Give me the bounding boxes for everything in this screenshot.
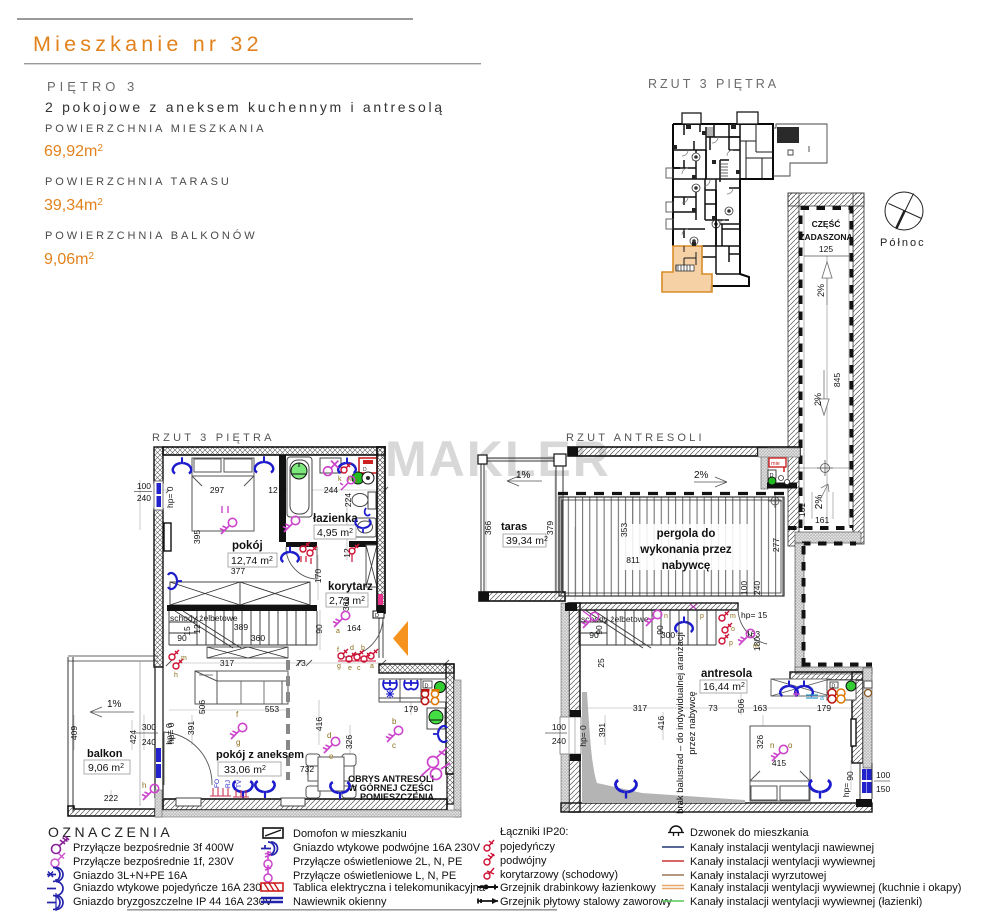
svg-text:schody żelbetowe: schody żelbetowe: [170, 613, 238, 623]
svg-text:h: h: [174, 672, 178, 679]
svg-text:1%: 1%: [516, 470, 531, 481]
svg-text:732: 732: [300, 764, 314, 774]
svg-text:409: 409: [69, 726, 79, 740]
svg-text:100: 100: [876, 770, 890, 780]
svg-text:326: 326: [755, 735, 765, 749]
svg-text:pokój: pokój: [232, 540, 263, 552]
svg-text:69,92m2: 69,92m2: [44, 143, 103, 160]
svg-text:Przyłącze bezpośrednie 3f 400W: Przyłącze bezpośrednie 3f 400W: [73, 842, 234, 854]
svg-text:o: o: [788, 741, 793, 750]
svg-text:240: 240: [137, 493, 151, 503]
svg-text:hp= 0: hp= 0: [164, 723, 174, 745]
svg-text:Nawiewnik okienny: Nawiewnik okienny: [293, 896, 387, 908]
svg-text:101: 101: [797, 503, 807, 517]
svg-text:163: 163: [753, 703, 767, 713]
svg-text:RZUT 3 PIĘTRA: RZUT 3 PIĘTRA: [152, 432, 275, 444]
svg-text:POWIERZCHNIA TARASU: POWIERZCHNIA TARASU: [45, 176, 232, 188]
svg-text:240: 240: [752, 581, 762, 595]
svg-text:553: 553: [265, 704, 279, 714]
svg-text:16,44 m2: 16,44 m2: [703, 681, 745, 693]
svg-text:353: 353: [619, 523, 629, 537]
svg-text:e: e: [329, 752, 334, 761]
svg-text:RZUT 3 PIĘTRA: RZUT 3 PIĘTRA: [648, 77, 779, 91]
svg-text:d: d: [327, 731, 331, 740]
svg-text:wykonania przez: wykonania przez: [639, 544, 732, 556]
svg-text:korytarz: korytarz: [328, 581, 373, 593]
svg-text:g: g: [337, 663, 341, 670]
svg-text:224: 224: [343, 493, 353, 507]
svg-text:Dzwonek do mieszkania: Dzwonek do mieszkania: [690, 827, 809, 839]
svg-text:taras: taras: [501, 521, 527, 533]
svg-text:100: 100: [137, 481, 151, 491]
svg-text:179: 179: [817, 703, 831, 713]
svg-text:pergola do: pergola do: [657, 528, 716, 540]
svg-text:m: m: [181, 655, 187, 662]
svg-text:395: 395: [192, 530, 202, 544]
svg-text:39,34m2: 39,34m2: [44, 197, 103, 214]
svg-text:TV: TV: [236, 779, 243, 788]
svg-text:170: 170: [313, 569, 323, 583]
svg-text:korytarzowy (schodowy): korytarzowy (schodowy): [500, 869, 618, 881]
svg-text:n: n: [770, 741, 774, 750]
svg-text:Przyłącze bezpośrednie 1f, 230: Przyłącze bezpośrednie 1f, 230V: [73, 856, 234, 868]
svg-text:b: b: [392, 717, 397, 726]
svg-text:9,06m2: 9,06m2: [44, 251, 94, 268]
svg-text:e: e: [348, 665, 352, 672]
svg-text:416: 416: [656, 716, 666, 730]
svg-text:240: 240: [142, 737, 156, 747]
svg-text:a: a: [820, 695, 824, 702]
svg-text:150: 150: [876, 784, 890, 794]
svg-text:416: 416: [314, 717, 324, 731]
svg-text:n: n: [664, 613, 668, 620]
svg-text:90: 90: [314, 624, 324, 634]
svg-text:73: 73: [708, 703, 718, 713]
svg-text:RJ: RJ: [225, 780, 232, 788]
svg-text:12: 12: [268, 485, 278, 495]
svg-text:15: 15: [182, 626, 192, 636]
svg-text:Kanały instalacji wentylacji n: Kanały instalacji wentylacji nawiewnej: [690, 842, 874, 854]
svg-text:300: 300: [142, 722, 156, 732]
svg-text:hp= 15: hp= 15: [741, 610, 768, 620]
svg-text:2%: 2%: [694, 470, 709, 481]
svg-text:k: k: [348, 476, 352, 483]
svg-text:o: o: [731, 626, 735, 633]
svg-text:25: 25: [596, 658, 606, 668]
svg-text:2 pokojowe z aneksem kuchennym: 2 pokojowe z aneksem kuchennym i antreso…: [45, 99, 445, 115]
svg-text:Kanały instalacji wentylacji w: Kanały instalacji wentylacji wywiewnej: [690, 856, 875, 868]
svg-text:845: 845: [832, 373, 842, 387]
svg-text:9,06 m2: 9,06 m2: [88, 762, 124, 774]
svg-text:360: 360: [251, 633, 265, 643]
svg-text:mie: mie: [771, 461, 780, 467]
svg-text:g: g: [236, 738, 240, 747]
svg-text:297: 297: [210, 485, 224, 495]
svg-text:p: p: [729, 640, 733, 647]
svg-text:antresola: antresola: [701, 668, 753, 680]
svg-text:Grzejnik płytowy stalowy zawor: Grzejnik płytowy stalowy zaworowy: [500, 896, 672, 908]
svg-text:125: 125: [819, 244, 833, 254]
svg-text:179: 179: [404, 704, 418, 714]
svg-text:389: 389: [234, 622, 248, 632]
svg-text:c: c: [357, 665, 361, 672]
svg-text:Przyłącze oświetleniowe L, N,: Przyłącze oświetleniowe L, N, PE: [293, 870, 456, 882]
svg-text:424: 424: [128, 730, 138, 744]
svg-text:164: 164: [347, 623, 361, 633]
svg-text:ZADASZONA: ZADASZONA: [799, 232, 852, 242]
svg-text:326: 326: [344, 735, 354, 749]
svg-text:b: b: [361, 645, 365, 652]
svg-text:POWIERZCHNIA MIESZKANIA: POWIERZCHNIA MIESZKANIA: [45, 123, 266, 135]
svg-text:Przyłącze oświetleniowe 2L, N,: Przyłącze oświetleniowe 2L, N, PE: [293, 856, 462, 868]
svg-text:Kanały instalacji wyrzutowej: Kanały instalacji wyrzutowej: [690, 870, 826, 882]
svg-text:m: m: [730, 613, 736, 620]
svg-text:100: 100: [739, 581, 749, 595]
svg-text:c: c: [392, 741, 396, 750]
svg-text:222: 222: [104, 793, 118, 803]
svg-text:Kanały instalacji wentylacji w: Kanały instalacji wentylacji wywiewnej (…: [690, 882, 961, 894]
svg-text:Północ: Północ: [880, 237, 926, 249]
svg-text:1%: 1%: [107, 699, 122, 710]
svg-text:CZĘŚĆ: CZĘŚĆ: [812, 218, 841, 229]
svg-text:hp=: hp=: [841, 783, 851, 797]
svg-text:506: 506: [736, 699, 746, 713]
svg-text:317: 317: [220, 658, 234, 668]
svg-text:Gniazdo 3L+N+PE 16A: Gniazdo 3L+N+PE 16A: [73, 870, 188, 882]
svg-text:4,95 m2: 4,95 m2: [317, 527, 353, 539]
svg-text:361: 361: [341, 597, 351, 611]
svg-text:100: 100: [552, 722, 566, 732]
svg-text:317: 317: [633, 703, 647, 713]
svg-text:POMIESZCZENIA: POMIESZCZENIA: [360, 792, 435, 802]
svg-text:73: 73: [296, 658, 306, 668]
svg-text:RZUT ANTRESOLI: RZUT ANTRESOLI: [566, 432, 705, 444]
svg-text:366: 366: [483, 521, 493, 535]
svg-text:przez nabywcę: przez nabywcę: [687, 691, 698, 754]
svg-text:D: D: [375, 613, 379, 619]
svg-text:podwójny: podwójny: [500, 855, 547, 867]
svg-text:hp= 0: hp= 0: [165, 486, 175, 508]
svg-text:Domofon w mieszkaniu: Domofon w mieszkaniu: [293, 828, 407, 840]
svg-text:506: 506: [197, 700, 207, 714]
svg-text:FO: FO: [214, 779, 221, 788]
svg-text:90: 90: [845, 771, 855, 781]
svg-text:Gniazdo wtykowe podwójne 16A 2: Gniazdo wtykowe podwójne 16A 230V: [293, 842, 481, 854]
svg-text:39,34 m2: 39,34 m2: [506, 535, 548, 547]
svg-text:Kanały instalacji wentylacji w: Kanały instalacji wentylacji wywiewnej (…: [690, 896, 922, 908]
svg-text:nabywcę: nabywcę: [662, 560, 711, 572]
svg-text:12: 12: [192, 624, 202, 634]
svg-text:a: a: [370, 663, 374, 670]
svg-text:Mieszkanie nr 32: Mieszkanie nr 32: [33, 32, 263, 56]
svg-text:Tablica elektryczna i telekomu: Tablica elektryczna i telekomunikacyjna: [293, 882, 486, 894]
svg-text:377: 377: [231, 566, 245, 576]
svg-text:2%: 2%: [813, 393, 823, 406]
svg-text:h: h: [142, 781, 146, 790]
svg-text:balkon: balkon: [87, 748, 123, 760]
svg-text:hp= 0: hp= 0: [578, 725, 588, 747]
svg-text:379: 379: [545, 521, 555, 535]
svg-text:391: 391: [186, 721, 196, 735]
svg-text:2%: 2%: [814, 495, 825, 510]
svg-text:811: 811: [626, 555, 640, 565]
svg-text:brak balustrad – do indywidual: brak balustrad – do indywidualnej aranża…: [675, 632, 686, 814]
svg-text:240: 240: [552, 736, 566, 746]
svg-text:D: D: [425, 684, 429, 690]
svg-text:m: m: [753, 643, 759, 650]
svg-text:f: f: [337, 647, 339, 654]
svg-text:90: 90: [655, 625, 665, 635]
svg-text:Grzejnik drabinkowy łazienkowy: Grzejnik drabinkowy łazienkowy: [500, 882, 656, 894]
svg-text:90: 90: [594, 625, 604, 635]
svg-text:pojedyńczy: pojedyńczy: [500, 841, 556, 853]
svg-text:d: d: [350, 645, 354, 652]
svg-text:pokój z aneksem: pokój z aneksem: [216, 749, 304, 761]
svg-text:Gniazdo wtykowe pojedyńcze 16A: Gniazdo wtykowe pojedyńcze 16A 230V: [73, 882, 269, 894]
svg-text:33,06 m2: 33,06 m2: [224, 764, 266, 776]
svg-text:k: k: [338, 476, 342, 483]
svg-text:161: 161: [815, 515, 829, 525]
svg-text:Łączniki IP20:: Łączniki IP20:: [500, 826, 568, 838]
svg-text:391: 391: [597, 723, 607, 737]
svg-text:łazienka: łazienka: [313, 513, 358, 525]
svg-text:a: a: [336, 628, 340, 635]
svg-text:415: 415: [772, 758, 786, 768]
svg-text:PIĘTRO 3: PIĘTRO 3: [47, 79, 138, 94]
svg-text:2%: 2%: [816, 284, 826, 297]
svg-text:POWIERZCHNIA BALKONÓW: POWIERZCHNIA BALKONÓW: [45, 229, 257, 242]
svg-text:277: 277: [771, 538, 781, 552]
svg-text:Gniazdo bryzgoszczelne IP 44 1: Gniazdo bryzgoszczelne IP 44 16A 230V: [73, 896, 273, 908]
svg-text:p: p: [700, 613, 704, 620]
svg-text:244: 244: [324, 485, 338, 495]
